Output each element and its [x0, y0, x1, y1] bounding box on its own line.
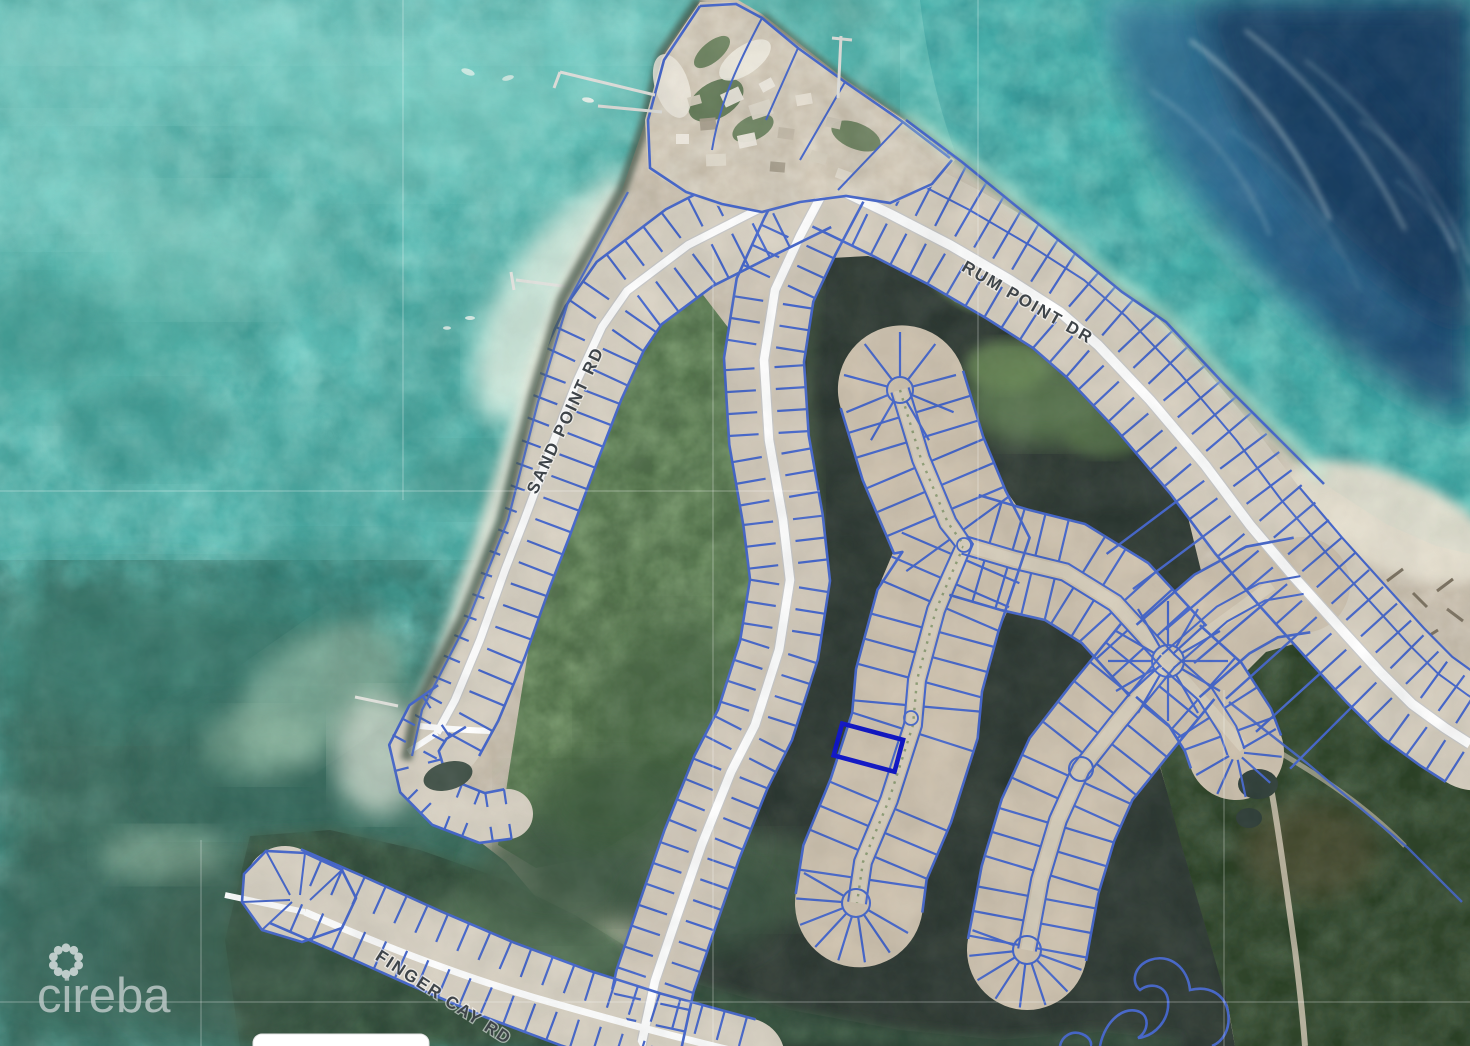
svg-text:cireba: cireba	[37, 969, 171, 1023]
